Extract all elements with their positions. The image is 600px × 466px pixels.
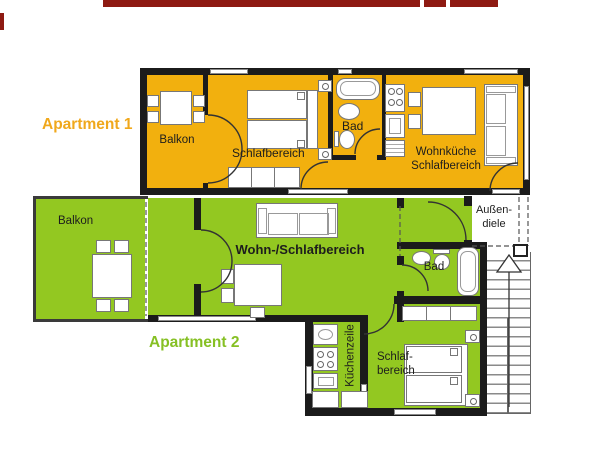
table-symbol <box>160 91 192 125</box>
chair-symbol <box>193 111 205 123</box>
pillow-symbol <box>297 92 305 100</box>
window <box>338 69 352 74</box>
door-threshold <box>492 189 520 194</box>
room-label-bad-1: Bad <box>342 120 363 133</box>
bathtub-symbol <box>457 247 479 296</box>
cropped-title-tick <box>0 13 4 30</box>
chair-symbol <box>250 307 265 318</box>
room-label-balkon-1: Balkon <box>150 134 204 147</box>
wall-segment <box>194 198 201 230</box>
apartment2-label: Apartment 2 <box>149 334 239 352</box>
room-label-schlaf-line2: bereich <box>377 365 415 378</box>
kitchen-unit-symbol <box>313 373 338 389</box>
window <box>210 69 248 74</box>
balcony-wall <box>33 196 36 322</box>
room-label-wohnkueche-line1: Wohnküche <box>398 146 494 159</box>
nightstand-symbol <box>465 394 480 407</box>
chair-symbol <box>221 288 234 303</box>
room-label-wohnkueche-line2: Schlafbereich <box>398 160 494 173</box>
chair-symbol <box>114 240 129 253</box>
title-bar-gap <box>446 0 450 7</box>
window <box>306 366 312 394</box>
wall-segment <box>394 296 484 304</box>
window <box>158 316 256 321</box>
kitchen-sink-symbol <box>313 324 338 345</box>
room-label-wohn-schlafbereich: Wohn-/Schlafbereich <box>200 243 400 257</box>
label-aussendiele-line1: Außen- <box>470 204 518 216</box>
wall-segment <box>397 198 404 208</box>
wardrobe-symbol <box>228 167 252 188</box>
chair-symbol <box>408 92 421 107</box>
title-bar-gap <box>420 0 424 7</box>
staircase-divider <box>507 318 509 414</box>
wardrobe-symbol <box>426 306 451 321</box>
chair-symbol <box>193 95 205 107</box>
kitchen-unit-symbol <box>385 114 405 138</box>
wall-segment <box>203 183 208 192</box>
sink-symbol <box>338 103 360 120</box>
chair-symbol <box>114 299 129 312</box>
label-aussendiele-line2: diele <box>470 218 518 230</box>
room-label-balkon-2: Balkon <box>58 215 93 228</box>
chair-symbol <box>147 95 159 107</box>
kitchen-counter-symbol <box>312 391 339 408</box>
floor-plan: Apartment 1 Balkon Schlafbereich Bad Woh… <box>0 0 600 466</box>
table-symbol <box>234 264 282 306</box>
room-label-schlafbereich-1: Schlafbereich <box>232 147 305 160</box>
staircase <box>487 252 531 414</box>
chair-symbol <box>221 269 234 284</box>
bed-headboard-symbol <box>307 90 318 149</box>
couch-symbol <box>256 203 338 238</box>
bathtub-symbol <box>336 78 380 100</box>
wardrobe-symbol <box>274 167 300 188</box>
pillow-symbol <box>450 348 458 356</box>
balcony-wall <box>33 319 148 322</box>
window <box>288 189 348 194</box>
wall-segment <box>330 155 356 160</box>
wall-segment <box>480 242 487 416</box>
wall-segment <box>140 68 147 195</box>
room-label-bad-2: Bad <box>414 261 454 274</box>
window <box>524 86 529 180</box>
wardrobe-symbol <box>402 306 427 321</box>
window <box>394 409 436 415</box>
chair-symbol <box>408 114 421 129</box>
chair-symbol <box>147 111 159 123</box>
apartment2-bath-door-opening <box>397 265 404 291</box>
stove-symbol <box>313 347 338 371</box>
room-label-schlaf-line1: Schlaf- <box>377 351 413 364</box>
stove-symbol <box>385 84 405 112</box>
apartment2-hall-floor <box>404 198 464 242</box>
wardrobe-symbol <box>251 167 275 188</box>
table-symbol <box>422 87 476 135</box>
nightstand-symbol <box>318 148 332 160</box>
pillow-symbol <box>450 377 458 385</box>
balcony-wall <box>33 196 148 199</box>
table-symbol <box>92 254 132 298</box>
apartment1-label: Apartment 1 <box>42 116 132 134</box>
nightstand-symbol <box>318 80 332 92</box>
room-label-kuechenzeile: Küchenzeile <box>345 316 360 396</box>
window <box>464 69 518 74</box>
chair-symbol <box>96 299 111 312</box>
chair-symbol <box>96 240 111 253</box>
nightstand-symbol <box>465 330 480 343</box>
cropped-title-bar <box>103 0 498 7</box>
wall-segment <box>397 256 404 265</box>
wardrobe-symbol <box>450 306 477 321</box>
